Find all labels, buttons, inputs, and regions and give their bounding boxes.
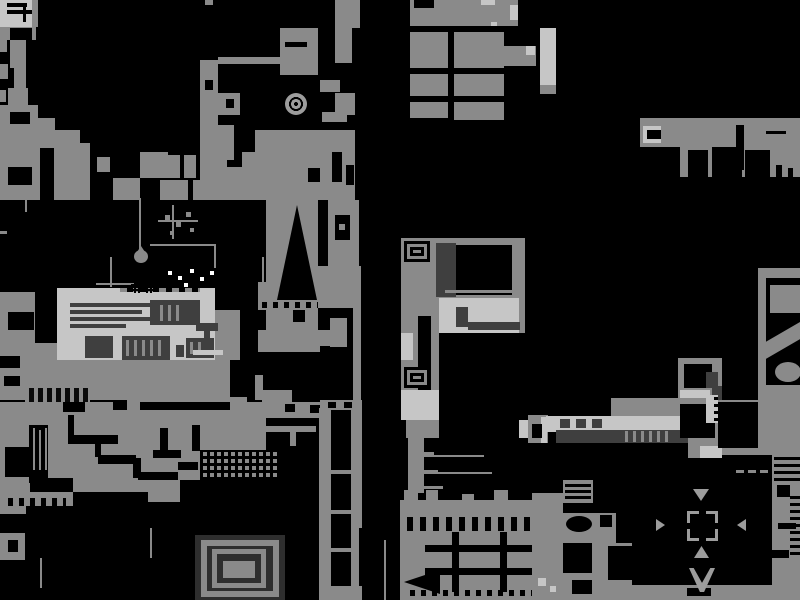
map-terrain-block — [184, 283, 188, 287]
diagonal-platform — [764, 322, 800, 360]
map-terrain-block — [7, 10, 32, 14]
map-terrain-block — [468, 322, 520, 330]
map-terrain-block — [262, 390, 292, 402]
map-terrain-block — [178, 462, 198, 470]
map-terrain-block — [68, 435, 118, 444]
map-terrain-block — [308, 168, 320, 182]
hash-bar — [138, 281, 140, 293]
map-terrain-block — [63, 402, 85, 412]
map-terrain-block — [410, 26, 518, 32]
map-terrain-block — [718, 402, 758, 448]
map-terrain-block — [32, 0, 38, 27]
map-terrain-block — [113, 402, 127, 410]
map-texture-vslat — [160, 305, 184, 321]
map-terrain-block — [500, 532, 507, 592]
map-terrain-block — [200, 60, 218, 160]
map-terrain-block — [4, 376, 20, 386]
map-terrain-block — [320, 400, 362, 410]
bracket-corner — [687, 511, 699, 523]
map-terrain-block — [40, 558, 42, 588]
hash-marker — [143, 281, 155, 293]
map-terrain-block — [10, 40, 26, 68]
map-terrain-block — [777, 485, 790, 497]
map-terrain-block — [452, 532, 459, 592]
map-terrain-block — [414, 0, 434, 8]
compass-center-brackets — [687, 511, 715, 538]
oval-platform — [775, 362, 800, 382]
map-terrain-block — [572, 580, 592, 594]
map-terrain-block — [776, 165, 782, 177]
map-terrain-block — [70, 310, 142, 314]
hash-bar — [143, 284, 155, 286]
map-terrain-block — [70, 317, 154, 321]
map-terrain-block — [401, 333, 413, 360]
map-texture-hticks — [790, 495, 800, 555]
greek-key-pattern — [404, 367, 430, 388]
map-terrain-block — [425, 568, 532, 575]
hash-bar — [131, 284, 143, 286]
map-terrain-block — [226, 99, 234, 108]
map-terrain-block — [10, 112, 30, 124]
map-texture-vslat — [625, 431, 669, 442]
map-terrain-block — [293, 310, 305, 322]
map-terrain-block — [766, 278, 790, 285]
bracket-corner — [706, 529, 718, 541]
bracket-notch — [647, 130, 661, 139]
map-terrain-block — [97, 157, 110, 172]
droplet-ball — [134, 250, 148, 263]
corridor-bracket — [643, 126, 661, 143]
map-terrain-block — [280, 28, 318, 75]
map-terrain-block — [565, 496, 591, 499]
map-terrain-block — [456, 245, 512, 295]
map-terrain-block — [218, 125, 234, 160]
map-terrain-block — [0, 64, 8, 79]
map-terrain-block — [113, 178, 140, 200]
ring-emblem — [285, 93, 307, 115]
map-terrain-block — [481, 0, 495, 5]
map-terrain-block — [8, 540, 18, 552]
map-terrain-block — [736, 470, 744, 473]
map-terrain-block — [140, 152, 168, 178]
map-terrain-block — [150, 244, 216, 246]
hash-bar — [150, 281, 152, 293]
map-texture-vslat — [126, 340, 166, 356]
map-terrain-block — [331, 510, 351, 514]
compass-arrow-up — [694, 546, 709, 558]
map-terrain-block — [344, 402, 352, 408]
map-terrain-block — [258, 282, 268, 300]
map-terrain-block — [68, 415, 74, 437]
map-terrain-block — [688, 150, 708, 177]
map-texture-hticks — [774, 455, 800, 481]
map-terrain-block — [160, 180, 188, 200]
map-texture-teeth — [8, 498, 66, 506]
map-terrain-block — [33, 428, 35, 470]
map-terrain-block — [353, 300, 361, 400]
map-terrain-block — [8, 167, 32, 185]
map-terrain-block — [205, 0, 213, 5]
map-terrain-block — [401, 390, 439, 420]
map-terrain-block — [560, 419, 570, 428]
map-terrain-block — [153, 450, 181, 458]
map-terrain-block — [0, 506, 26, 514]
map-terrain-block — [540, 28, 556, 85]
map-terrain-block — [331, 548, 351, 552]
map-terrain-block — [770, 285, 800, 313]
map-terrain-block — [176, 345, 184, 357]
map-terrain-block — [196, 323, 218, 331]
map-terrain-block — [532, 493, 563, 515]
bracket-corner — [706, 511, 718, 523]
map-texture-dashes — [400, 517, 532, 531]
map-terrain-block — [532, 424, 542, 438]
map-terrain-block — [320, 80, 340, 92]
map-terrain-block — [410, 68, 504, 74]
map-terrain-block — [200, 172, 218, 188]
map-texture-rubble — [200, 450, 280, 480]
map-terrain-block — [538, 578, 546, 586]
map-terrain-block — [576, 419, 586, 428]
map-terrain-block — [85, 336, 113, 358]
map-terrain-block — [0, 105, 38, 145]
map-terrain-block — [328, 402, 336, 408]
map-terrain-block — [425, 545, 532, 552]
map-terrain-block — [748, 470, 756, 473]
map-terrain-block — [190, 269, 194, 273]
spiral-structure — [195, 535, 285, 600]
hash-marker — [131, 281, 143, 293]
map-terrain-block — [186, 212, 191, 217]
map-terrain-block — [752, 167, 757, 177]
map-terrain-block — [410, 96, 504, 102]
map-terrain-block — [608, 546, 642, 580]
map-terrain-block — [346, 165, 354, 185]
map-terrain-block — [290, 432, 296, 446]
map-terrain-block — [319, 586, 362, 600]
map-terrain-block — [335, 0, 352, 63]
map-terrain-block — [728, 168, 733, 177]
spiral-core — [223, 561, 255, 578]
map-terrain-block — [736, 125, 744, 170]
map-terrain-block — [138, 472, 178, 480]
map-terrain-block — [297, 185, 355, 200]
hash-bar — [134, 281, 136, 293]
game-map-canvas — [0, 0, 800, 600]
map-terrain-block — [766, 131, 786, 134]
map-terrain-block — [148, 478, 180, 502]
map-terrain-block — [318, 266, 361, 300]
map-terrain-block — [526, 46, 535, 55]
map-terrain-block — [285, 42, 307, 47]
map-terrain-block — [0, 90, 6, 102]
map-terrain-block — [600, 515, 612, 527]
map-terrain-block — [200, 277, 204, 281]
map-terrain-block — [408, 486, 443, 489]
map-terrain-block — [716, 166, 722, 177]
map-terrain-block — [769, 550, 789, 558]
map-terrain-block — [258, 330, 320, 352]
map-terrain-block — [214, 246, 216, 268]
map-terrain-block — [95, 437, 101, 457]
map-terrain-block — [331, 470, 351, 474]
map-terrain-block — [168, 155, 180, 178]
map-terrain-block — [192, 425, 200, 451]
map-terrain-block — [406, 420, 439, 438]
map-terrain-block — [184, 155, 196, 178]
map-terrain-block — [178, 276, 182, 280]
map-terrain-block — [426, 490, 438, 500]
map-terrain-block — [205, 80, 213, 90]
map-terrain-block — [384, 540, 386, 600]
map-terrain-block — [158, 220, 198, 222]
bracket-corner — [687, 529, 699, 541]
map-terrain-block — [330, 318, 347, 347]
map-terrain-block — [764, 169, 769, 177]
map-terrain-block — [680, 404, 706, 438]
map-terrain-block — [0, 356, 20, 368]
map-terrain-block — [176, 222, 181, 227]
map-terrain-block — [8, 312, 34, 330]
map-terrain-block — [25, 198, 27, 212]
map-terrain-block — [408, 438, 424, 493]
map-terrain-block — [322, 112, 347, 122]
key-layer — [413, 376, 421, 379]
map-terrain-block — [565, 484, 591, 487]
map-terrain-block — [40, 148, 54, 200]
map-terrain-block — [23, 7, 26, 22]
compass-arrow-left — [737, 519, 746, 531]
hash-bar — [143, 289, 155, 291]
hash-bar — [146, 281, 148, 293]
map-terrain-block — [45, 428, 47, 470]
greek-key-pattern — [404, 241, 430, 262]
map-terrain-block — [351, 408, 362, 528]
map-terrain-block — [563, 543, 592, 573]
map-terrain-block — [436, 243, 456, 297]
map-terrain-block — [5, 447, 30, 477]
map-terrain-block — [510, 5, 518, 20]
map-terrain-block — [550, 586, 556, 592]
map-terrain-block — [255, 153, 300, 200]
map-terrain-block — [332, 152, 342, 182]
map-terrain-block — [8, 88, 28, 105]
map-terrain-block — [168, 271, 172, 275]
map-terrain-block — [285, 404, 295, 412]
map-terrain-block — [445, 290, 513, 293]
map-terrain-block — [448, 32, 454, 118]
map-terrain-block — [339, 224, 345, 230]
map-terrain-block — [494, 490, 508, 500]
key-layer — [413, 250, 421, 253]
map-terrain-block — [540, 85, 556, 94]
map-terrain-block — [172, 205, 174, 239]
map-terrain-block — [424, 472, 492, 474]
oval-cavity — [566, 516, 592, 532]
map-terrain-block — [424, 455, 484, 457]
map-terrain-block — [70, 303, 150, 307]
map-terrain-block — [319, 408, 331, 600]
map-terrain-block — [788, 168, 793, 177]
map-terrain-block — [352, 0, 360, 28]
map-terrain-block — [210, 271, 214, 275]
map-terrain-block — [30, 478, 73, 492]
map-terrain-block — [565, 490, 591, 493]
map-texture-teeth — [410, 590, 532, 596]
map-terrain-block — [140, 402, 230, 410]
map-texture-hticks — [714, 397, 718, 421]
map-terrain-block — [37, 118, 55, 145]
map-terrain-block — [70, 324, 126, 328]
map-terrain-block — [96, 283, 134, 285]
map-terrain-block — [139, 198, 141, 250]
hanging-droplet — [134, 246, 148, 263]
compass-arrow-down — [693, 489, 709, 501]
map-terrain-block — [98, 455, 136, 464]
map-terrain-block — [0, 38, 7, 52]
map-terrain-block — [0, 231, 7, 234]
map-terrain-block — [760, 470, 768, 473]
compass-arrow-right — [656, 519, 665, 531]
map-terrain-block — [39, 430, 41, 470]
map-terrain-block — [335, 95, 353, 110]
map-terrain-block — [193, 350, 223, 355]
map-terrain-block — [150, 528, 152, 558]
hash-bar — [131, 289, 143, 291]
map-terrain-block — [592, 419, 602, 428]
map-terrain-block — [456, 307, 468, 327]
map-terrain-block — [418, 316, 431, 360]
map-terrain-block — [10, 28, 32, 40]
map-terrain-block — [404, 490, 418, 500]
map-terrain-block — [218, 180, 260, 193]
map-terrain-block — [190, 228, 194, 232]
